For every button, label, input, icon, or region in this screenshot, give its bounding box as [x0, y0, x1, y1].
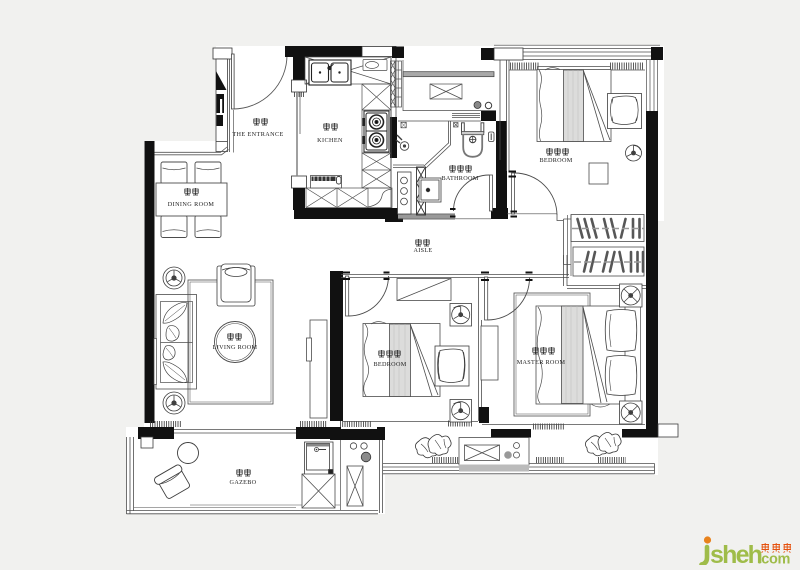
svg-text:GAZEBO: GAZEBO [230, 479, 257, 486]
svg-text:BEDROOM: BEDROOM [539, 157, 572, 164]
svg-text:MASTER ROOM: MASTER ROOM [517, 359, 566, 366]
svg-text:.com: .com [758, 552, 791, 566]
svg-text:BATHROOM: BATHROOM [441, 175, 478, 182]
svg-text:DINING ROOM: DINING ROOM [168, 201, 215, 208]
svg-text:THE ENTRANCE: THE ENTRANCE [232, 131, 283, 138]
svg-text:LIVING ROOM: LIVING ROOM [213, 344, 258, 351]
svg-text:KICHEN: KICHEN [317, 137, 343, 144]
svg-text:BEDROOM: BEDROOM [373, 361, 406, 368]
svg-text:sheh: sheh [710, 541, 762, 565]
svg-text:AISLE: AISLE [413, 247, 432, 254]
